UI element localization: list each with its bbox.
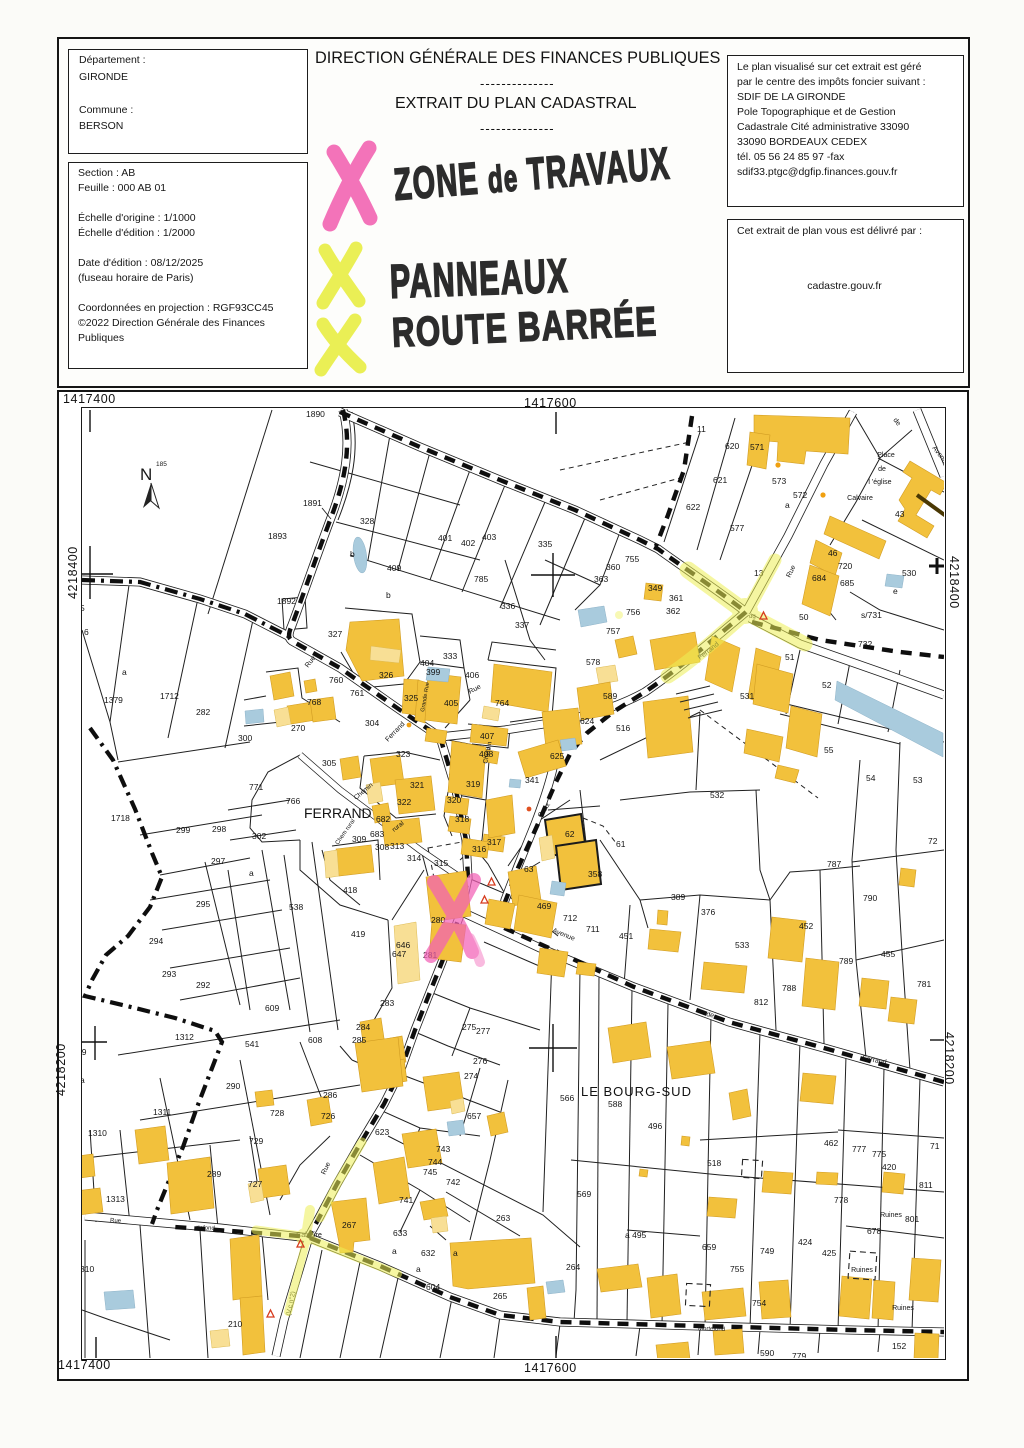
svg-text:760: 760	[329, 675, 343, 685]
svg-text:275: 275	[462, 1022, 476, 1032]
svg-text:308: 308	[375, 842, 389, 852]
svg-text:608: 608	[308, 1035, 322, 1045]
svg-text:358: 358	[588, 869, 602, 879]
svg-text:588: 588	[608, 1099, 622, 1109]
svg-text:284: 284	[356, 1022, 370, 1032]
svg-text:de: de	[891, 417, 901, 428]
svg-text:604: 604	[426, 1282, 440, 1292]
svg-text:622: 622	[686, 502, 700, 512]
svg-text:538: 538	[289, 902, 303, 912]
svg-text:1312: 1312	[175, 1032, 194, 1042]
svg-text:11: 11	[697, 424, 706, 434]
svg-text:341: 341	[525, 775, 539, 785]
svg-text:295: 295	[196, 899, 210, 909]
svg-text:589: 589	[603, 691, 617, 701]
svg-text:LE BOURG-SUD: LE BOURG-SUD	[581, 1084, 692, 1099]
svg-text:755: 755	[625, 554, 639, 564]
svg-text:711: 711	[586, 924, 600, 934]
svg-text:Place: Place	[877, 452, 895, 459]
svg-text:401: 401	[438, 533, 452, 543]
svg-text:633: 633	[393, 1228, 407, 1238]
svg-text:Ruines: Ruines	[880, 1212, 902, 1219]
svg-text:726: 726	[321, 1111, 335, 1121]
svg-text:624: 624	[580, 716, 594, 726]
svg-text:451: 451	[619, 931, 633, 941]
svg-text:620: 620	[725, 441, 739, 451]
svg-text:1892: 1892	[277, 596, 296, 606]
svg-text:720: 720	[838, 561, 852, 571]
svg-text:322: 322	[397, 797, 411, 807]
svg-text:39: 39	[77, 1047, 87, 1057]
svg-text:267: 267	[342, 1220, 356, 1230]
svg-text:270: 270	[291, 723, 305, 733]
svg-text:516: 516	[616, 723, 630, 733]
svg-text:285: 285	[352, 1035, 366, 1045]
svg-text:310: 310	[80, 1264, 94, 1274]
svg-text:778: 778	[834, 1195, 848, 1205]
svg-text:335: 335	[538, 539, 552, 549]
svg-text:712: 712	[563, 913, 577, 923]
svg-text:54: 54	[866, 773, 876, 783]
svg-text:Rue: Rue	[468, 684, 483, 696]
svg-text:657: 657	[467, 1111, 481, 1121]
svg-text:532: 532	[710, 790, 724, 800]
svg-text:a: a	[249, 868, 254, 878]
svg-text:418: 418	[343, 885, 357, 895]
svg-text:1712: 1712	[160, 691, 179, 701]
svg-text:787: 787	[827, 859, 841, 869]
svg-text:496: 496	[648, 1121, 662, 1131]
svg-text:761: 761	[350, 688, 364, 698]
svg-text:210: 210	[228, 1319, 242, 1329]
svg-text:531: 531	[740, 691, 754, 701]
svg-text:50: 50	[799, 612, 809, 622]
svg-text:185: 185	[156, 461, 167, 468]
svg-text:569: 569	[577, 1189, 591, 1199]
svg-text:399: 399	[426, 667, 440, 677]
svg-text:678: 678	[867, 1226, 881, 1236]
svg-text:405: 405	[444, 698, 458, 708]
svg-text:304: 304	[365, 718, 379, 728]
svg-text:659: 659	[702, 1242, 716, 1252]
svg-text:55: 55	[824, 745, 834, 755]
svg-text:1718: 1718	[111, 813, 130, 823]
svg-text:1890: 1890	[306, 409, 325, 419]
svg-text:777: 777	[852, 1144, 866, 1154]
svg-text:328: 328	[360, 516, 374, 526]
svg-text:309: 309	[352, 834, 366, 844]
svg-text:Ferrand: Ferrand	[384, 721, 406, 744]
svg-text:729: 729	[249, 1136, 263, 1146]
svg-text:1311: 1311	[153, 1107, 172, 1117]
svg-text:277: 277	[476, 1026, 490, 1036]
svg-text:682: 682	[376, 814, 390, 824]
svg-text:609: 609	[265, 1003, 279, 1013]
svg-text:a: a	[122, 667, 127, 677]
svg-text:298: 298	[212, 824, 226, 834]
svg-text:299: 299	[176, 825, 190, 835]
svg-text:62: 62	[565, 829, 575, 839]
svg-text:577: 577	[730, 523, 744, 533]
svg-text:727: 727	[248, 1179, 262, 1189]
svg-text:Mortefond: Mortefond	[698, 1326, 725, 1333]
svg-text:274: 274	[464, 1071, 478, 1081]
svg-text:53: 53	[913, 775, 923, 785]
svg-text:744: 744	[428, 1157, 442, 1167]
svg-text:313: 313	[390, 841, 404, 851]
svg-text:749: 749	[760, 1246, 774, 1256]
svg-text:766: 766	[286, 796, 300, 806]
svg-text:Calvaire: Calvaire	[847, 495, 873, 502]
svg-text:363: 363	[594, 574, 608, 584]
svg-text:743: 743	[436, 1144, 450, 1154]
svg-text:573: 573	[772, 476, 786, 486]
svg-text:533: 533	[735, 940, 749, 950]
svg-text:779: 779	[792, 1351, 806, 1361]
svg-text:771: 771	[249, 782, 263, 792]
svg-text:320: 320	[447, 795, 461, 805]
svg-text:a: a	[453, 1248, 458, 1258]
svg-text:N: N	[140, 465, 152, 484]
svg-text:71: 71	[930, 1141, 940, 1151]
svg-text:1379: 1379	[104, 695, 123, 705]
svg-text:745: 745	[423, 1167, 437, 1177]
svg-text:452: 452	[799, 921, 813, 931]
svg-text:323: 323	[396, 749, 410, 759]
svg-text:Rue: Rue	[110, 1218, 122, 1225]
svg-text:319: 319	[466, 779, 480, 789]
svg-text:293: 293	[162, 969, 176, 979]
svg-text:292: 292	[196, 980, 210, 990]
svg-text:647: 647	[392, 949, 406, 959]
svg-text:1891: 1891	[303, 498, 322, 508]
svg-text:754: 754	[752, 1298, 766, 1308]
svg-text:757: 757	[606, 626, 620, 636]
svg-text:361: 361	[669, 593, 683, 603]
svg-text:a: a	[392, 1246, 397, 1256]
svg-text:1893: 1893	[268, 531, 287, 541]
svg-text:52: 52	[822, 680, 832, 690]
svg-text:264: 264	[566, 1262, 580, 1272]
svg-text:621: 621	[713, 475, 727, 485]
svg-text:775: 775	[872, 1149, 886, 1159]
svg-text:l 'église: l 'église	[868, 479, 891, 486]
svg-text:469: 469	[537, 901, 551, 911]
svg-text:de: de	[878, 466, 886, 473]
svg-text:1310: 1310	[88, 1128, 107, 1138]
svg-text:360: 360	[606, 562, 620, 572]
svg-text:317: 317	[487, 837, 501, 847]
svg-text:333: 333	[443, 651, 457, 661]
svg-text:389: 389	[671, 892, 685, 902]
svg-text:755: 755	[730, 1264, 744, 1274]
svg-text:376: 376	[701, 907, 715, 917]
svg-text:321: 321	[410, 780, 424, 790]
svg-text:b: b	[386, 590, 391, 600]
svg-text:e: e	[893, 586, 898, 596]
svg-text:265: 265	[493, 1291, 507, 1301]
svg-text:rtefond: rtefond	[196, 1225, 215, 1232]
svg-text:632: 632	[421, 1248, 435, 1258]
svg-text:788: 788	[782, 983, 796, 993]
svg-text:282: 282	[196, 707, 210, 717]
svg-text:764: 764	[495, 698, 509, 708]
svg-text:263: 263	[496, 1213, 510, 1223]
svg-text:318: 318	[455, 814, 469, 824]
svg-text:302: 302	[252, 831, 266, 841]
svg-text:6: 6	[84, 627, 89, 637]
svg-text:a: a	[416, 1264, 421, 1274]
svg-text:s/731: s/731	[861, 610, 882, 620]
svg-text:541: 541	[245, 1039, 259, 1049]
svg-text:419: 419	[351, 929, 365, 939]
svg-text:403: 403	[482, 532, 496, 542]
svg-text:316: 316	[472, 844, 486, 854]
svg-text:61: 61	[616, 839, 626, 849]
svg-text:b: b	[350, 549, 355, 559]
svg-text:420: 420	[882, 1162, 896, 1172]
svg-text:571: 571	[750, 442, 764, 452]
svg-text:326: 326	[379, 670, 393, 680]
svg-text:294: 294	[149, 936, 163, 946]
svg-text:625: 625	[550, 751, 564, 761]
svg-text:51: 51	[785, 652, 795, 662]
svg-text:790: 790	[863, 893, 877, 903]
svg-text:684: 684	[812, 573, 826, 583]
svg-text:297: 297	[211, 856, 225, 866]
svg-text:152: 152	[892, 1341, 906, 1351]
svg-text:811: 811	[919, 1180, 933, 1190]
svg-text:5: 5	[80, 603, 85, 613]
svg-text:768: 768	[307, 697, 321, 707]
svg-text:406: 406	[465, 670, 479, 680]
svg-text:462: 462	[824, 1138, 838, 1148]
svg-text:623: 623	[375, 1127, 389, 1137]
svg-text:325: 325	[404, 693, 418, 703]
svg-text:Rue: Rue	[320, 1161, 332, 1176]
svg-text:424: 424	[798, 1237, 812, 1247]
svg-text:43: 43	[895, 509, 905, 519]
svg-text:409: 409	[387, 563, 401, 573]
svg-text:781: 781	[917, 979, 931, 989]
svg-text:741: 741	[399, 1195, 413, 1205]
svg-text:685: 685	[840, 578, 854, 588]
svg-text:789: 789	[839, 956, 853, 966]
svg-text:742: 742	[446, 1177, 460, 1187]
svg-text:300: 300	[238, 733, 252, 743]
svg-text:566: 566	[560, 1093, 574, 1103]
svg-text:286: 286	[323, 1090, 337, 1100]
svg-text:572: 572	[793, 490, 807, 500]
svg-text:305: 305	[322, 758, 336, 768]
svg-text:801: 801	[905, 1214, 919, 1224]
svg-text:1313: 1313	[106, 1194, 125, 1204]
svg-text:a: a	[80, 1075, 85, 1085]
svg-text:337: 337	[515, 620, 529, 630]
svg-text:Rue: Rue	[786, 564, 798, 579]
svg-text:518: 518	[707, 1158, 721, 1168]
svg-text:46: 46	[828, 548, 838, 558]
svg-text:a: a	[785, 500, 790, 510]
svg-text:289: 289	[207, 1169, 221, 1179]
svg-text:402: 402	[461, 538, 475, 548]
svg-text:362: 362	[666, 606, 680, 616]
svg-text:Ruines: Ruines	[851, 1267, 873, 1274]
svg-text:578: 578	[586, 657, 600, 667]
svg-text:315: 315	[434, 858, 448, 868]
svg-text:327: 327	[328, 629, 342, 639]
svg-text:Avenue: Avenue	[551, 927, 576, 942]
svg-text:590: 590	[760, 1348, 774, 1358]
svg-text:732: 732	[858, 639, 872, 649]
svg-text:72: 72	[928, 836, 938, 846]
svg-text:290: 290	[226, 1081, 240, 1091]
svg-text:407: 407	[480, 731, 494, 741]
svg-text:349: 349	[648, 583, 662, 593]
svg-text:683: 683	[370, 829, 384, 839]
svg-text:FERRAND: FERRAND	[304, 805, 372, 821]
svg-text:530: 530	[902, 568, 916, 578]
svg-text:336: 336	[501, 601, 515, 611]
svg-text:63: 63	[524, 864, 534, 874]
svg-text:812: 812	[754, 997, 768, 1007]
svg-text:785: 785	[474, 574, 488, 584]
svg-text:Ruines: Ruines	[892, 1305, 914, 1312]
svg-text:283: 283	[380, 998, 394, 1008]
svg-text:276: 276	[473, 1056, 487, 1066]
svg-text:455: 455	[881, 949, 895, 959]
svg-text:756: 756	[626, 607, 640, 617]
svg-text:728: 728	[270, 1108, 284, 1118]
svg-text:314: 314	[407, 853, 421, 863]
svg-text:a 495: a 495	[625, 1230, 647, 1240]
svg-text:425: 425	[822, 1248, 836, 1258]
